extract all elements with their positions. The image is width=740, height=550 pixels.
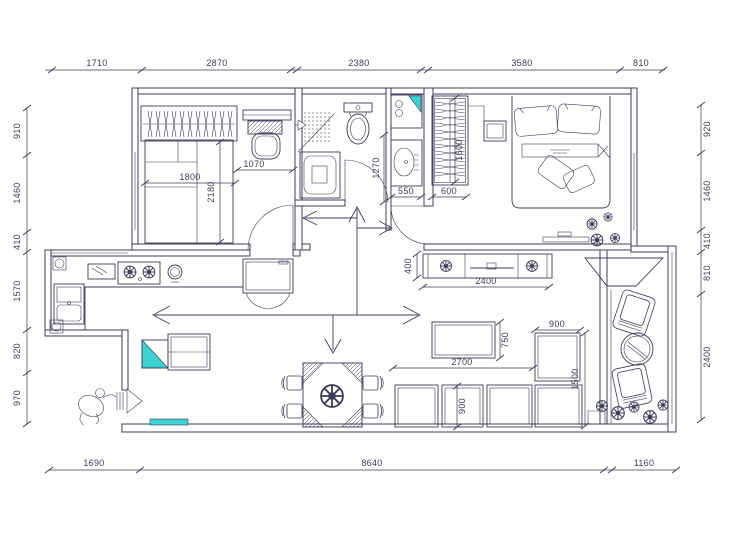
dim-label: 2700 [451, 357, 472, 367]
dim-label: 910 [12, 123, 22, 139]
dim-label: 1160 [634, 458, 655, 468]
dimension-string-top: 1710 2870 2380 3580 810 [45, 58, 667, 73]
dim-label: 1570 [12, 280, 22, 301]
dining-chair [282, 376, 302, 390]
dining-chair [363, 404, 383, 418]
desk-chair [252, 133, 280, 159]
dim-wardrobe2-width: 600 [428, 186, 470, 200]
entrance [75, 389, 142, 426]
wall-bath-alcove [386, 88, 391, 230]
armchair [612, 289, 657, 338]
dim-tv-depth: 400 [403, 251, 421, 281]
dim-label: 970 [12, 390, 22, 406]
dim-coffee-table-depth: 750 [496, 319, 510, 361]
dim-label: 2380 [348, 58, 369, 68]
dim-label: 1460 [12, 182, 22, 203]
wall-bath-left [295, 88, 302, 250]
coffee-table [432, 322, 495, 358]
dim-label: 2400 [702, 346, 712, 367]
dim-label: 1710 [86, 58, 107, 68]
dimension-string-left: 910 1460 410 1570 820 970 [12, 105, 31, 427]
dim-sofa-side-length: 1500 [570, 330, 589, 429]
tv-console [423, 254, 552, 278]
doormat [150, 419, 188, 425]
nightstand [484, 121, 506, 141]
bedroom-1: 1800 2180 1070 [141, 106, 297, 245]
cutting-board [88, 264, 115, 279]
dining-chair [363, 376, 383, 390]
wardrobe-1 [141, 106, 237, 141]
refrigerator [243, 259, 293, 309]
counter-edge [85, 287, 243, 330]
dining-chair [282, 404, 302, 418]
dim-label: 2180 [206, 181, 216, 202]
dim-label: 400 [403, 258, 413, 274]
dim-desk-width: 1070 [233, 159, 297, 173]
flow-arrows [153, 207, 420, 353]
nightstand-connector [468, 106, 484, 121]
dim-label: 3580 [511, 58, 532, 68]
flower-pot-bedroom2 [587, 213, 620, 246]
person-figure [75, 389, 116, 426]
dimension-string-bottom: 1690 8640 1160 [45, 458, 680, 473]
dim-basin-width: 550 [387, 186, 425, 200]
wall-bedroom1-bottom [132, 244, 250, 250]
floor-plan-page: 1710 2870 2380 3580 810 910 1460 410 157… [0, 0, 740, 550]
dim-label: 1600 [454, 139, 464, 160]
laundry-cabinet [391, 95, 422, 128]
dim-sofa-module-depth: 900 [453, 383, 467, 430]
dim-label: 900 [549, 319, 565, 329]
wall-entry-left [122, 330, 128, 390]
wash-basin [391, 140, 422, 186]
dim-label: 8640 [361, 458, 382, 468]
gas-stove [118, 262, 160, 284]
door-bedroom2 [391, 206, 429, 244]
dim-label: 1460 [702, 180, 712, 201]
dim-label: 1500 [570, 368, 580, 389]
dim-label: 2870 [206, 58, 227, 68]
balcony [585, 258, 668, 424]
shower-spray-area [303, 110, 331, 142]
kitchen [50, 257, 293, 333]
dim-label: 2400 [475, 276, 496, 286]
counter-corner-top [53, 257, 66, 270]
dim-label: 810 [702, 265, 712, 281]
wall-bath-bottom [295, 200, 345, 206]
dim-label: 410 [12, 234, 22, 250]
floor-plan-canvas: 1710 2870 2380 3580 810 910 1460 410 157… [0, 0, 740, 550]
dim-bed-length: 2180 [206, 139, 224, 245]
dim-wardrobe2-length: 1600 [451, 95, 464, 185]
dim-label: 410 [702, 233, 712, 249]
round-table [621, 333, 653, 365]
dim-label: 820 [12, 343, 22, 359]
bay-planter [585, 258, 663, 286]
wall-bedroom2-bottom [424, 244, 637, 250]
living-room: 400 2400 750 2700 [142, 251, 589, 430]
bedroom-2: 600 1600 [428, 95, 620, 246]
accent-triangle [142, 340, 168, 368]
dim-label: 920 [702, 121, 712, 137]
desk [243, 110, 291, 134]
accent-triangle [409, 96, 421, 112]
wall-kitchen-top-stub [293, 250, 300, 256]
sofa [395, 333, 582, 427]
washing-machine [300, 152, 340, 198]
toilet [344, 103, 372, 144]
dim-label: 810 [633, 58, 649, 68]
shoe-cabinet [142, 334, 210, 370]
kitchen-sink [54, 284, 84, 324]
dim-label: 550 [398, 186, 414, 196]
entrance-door-arrow [117, 389, 142, 413]
dim-sofa-corner-width: 900 [531, 319, 584, 333]
bed-king [512, 96, 610, 208]
wall-top [132, 88, 637, 94]
bathroom: 1270 550 [295, 95, 425, 205]
dim-label: 600 [441, 186, 457, 196]
door-bedroom1 [248, 205, 293, 250]
dim-label: 1270 [371, 157, 381, 178]
cooking-pot [168, 265, 182, 282]
dim-alcove-depth: 1270 [371, 132, 388, 205]
dim-label: 1070 [243, 159, 264, 169]
wall-bottom [122, 424, 676, 432]
dim-label: 750 [500, 332, 510, 348]
dining-set [282, 363, 384, 427]
dim-bed-width: 1800 [141, 172, 239, 186]
dimension-string-right: 920 1460 410 810 2400 [697, 102, 712, 423]
wall-balcony-divider [600, 250, 607, 424]
dim-sofa-length: 2700 [389, 357, 537, 371]
dim-label: 1800 [179, 172, 200, 182]
dim-label: 1690 [83, 458, 104, 468]
door-bathroom [345, 160, 388, 203]
table-centerpiece [321, 385, 343, 407]
tv-dresser [543, 232, 589, 242]
dim-label: 900 [457, 398, 467, 414]
